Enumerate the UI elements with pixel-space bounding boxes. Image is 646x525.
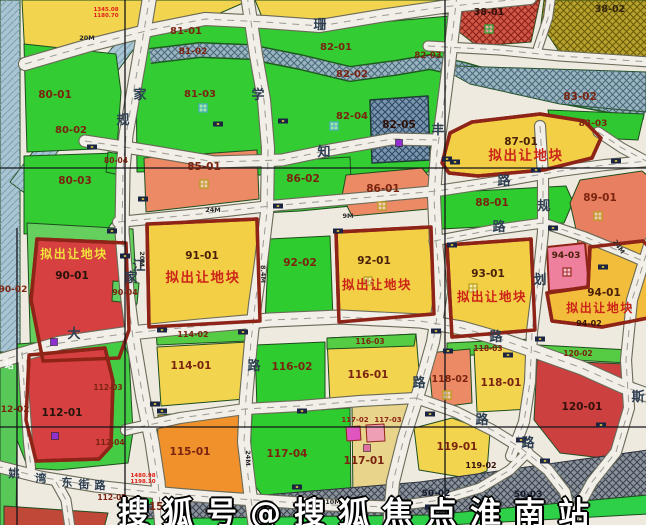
parcel-label: 90-04 bbox=[112, 288, 138, 297]
road-name-char: 路 bbox=[247, 358, 261, 374]
parcel-label: 94-01 bbox=[587, 287, 621, 299]
corner-marker-dot bbox=[535, 169, 537, 171]
parcel-label: 81-01 bbox=[170, 26, 202, 37]
road-name-char: 路 bbox=[497, 173, 511, 189]
parcel-label: 94-02 bbox=[576, 319, 602, 328]
parcel-label: 38-02 bbox=[595, 4, 625, 15]
parcel-label: 91-01 bbox=[185, 250, 219, 262]
parcel-label: 86-01 bbox=[366, 183, 400, 195]
map-symbol-icon bbox=[364, 445, 371, 452]
road-width-label: 24M bbox=[244, 450, 252, 466]
parcel-label: 112-04 bbox=[95, 438, 124, 447]
corner-marker-dot bbox=[111, 230, 113, 232]
parcel-label: 82-05 bbox=[382, 119, 416, 131]
parcel-label: 80-01 bbox=[38, 89, 72, 101]
parcel-label: 80-04 bbox=[104, 156, 128, 165]
road-name-char: 路 bbox=[489, 329, 503, 345]
road-name-char: 路 bbox=[475, 412, 489, 428]
parcel-label: 118-03 bbox=[473, 344, 502, 353]
road-name-char: 姚 bbox=[8, 466, 20, 480]
parcel-label: 82-01 bbox=[320, 42, 352, 53]
parcel-label: 112-03 bbox=[93, 383, 122, 392]
parcel-label: 81-02 bbox=[179, 47, 208, 57]
road-name-char: 大 bbox=[67, 326, 80, 342]
road-width-label: 20M bbox=[138, 251, 146, 267]
parcel-label: 117-02 bbox=[341, 416, 368, 424]
road-name-char: 学 bbox=[251, 87, 264, 103]
parcel-label: 118-02 bbox=[432, 374, 469, 385]
corner-marker-dot bbox=[301, 410, 303, 412]
parcel-92-01 bbox=[336, 227, 434, 322]
corner-marker-dot bbox=[91, 146, 93, 148]
map-symbol-icon bbox=[199, 104, 207, 112]
road-name-char: 划 bbox=[533, 272, 546, 288]
road-name-char: 家 bbox=[133, 87, 147, 103]
corner-marker-dot bbox=[154, 403, 156, 405]
parcel-label: 120-01 bbox=[562, 401, 603, 413]
parcel-label: 80-02 bbox=[55, 125, 87, 136]
parcel-label: 83-03 bbox=[579, 119, 608, 129]
road-name-char: 东 bbox=[62, 475, 73, 489]
parcel-114-01 bbox=[157, 342, 248, 406]
road-name-char: 站 bbox=[4, 359, 13, 371]
parcel-label: 87-01 bbox=[504, 136, 538, 148]
parcel-label: 88-01 bbox=[475, 197, 509, 209]
road-name-char: 路 bbox=[492, 219, 506, 235]
planning-map: 80-0180-0380-0483-0283-0338-0138-0282-05… bbox=[0, 0, 646, 525]
corner-marker-dot bbox=[242, 331, 244, 333]
road-name-char: 路 bbox=[95, 478, 107, 492]
parcel-label: 82-03 bbox=[414, 51, 441, 61]
offer-label: 拟出让地块 bbox=[40, 246, 108, 261]
road-name-char: 湾 bbox=[36, 471, 47, 485]
watermark: 搜狐号@搜狐焦点淮南站 bbox=[118, 488, 602, 525]
map-symbol-icon bbox=[200, 180, 208, 188]
map-symbol-icon bbox=[330, 122, 338, 130]
parcel-label: 92-01 bbox=[357, 255, 391, 267]
offer-label: 拟出让地块 bbox=[342, 277, 412, 292]
map-symbol-icon bbox=[51, 339, 58, 346]
parcel-label: 117-04 bbox=[267, 448, 308, 460]
corner-marker-dot bbox=[282, 120, 284, 122]
parcel-label: 114-01 bbox=[171, 360, 212, 372]
corner-marker-dot bbox=[124, 255, 126, 257]
corner-marker-dot bbox=[447, 350, 449, 352]
offer-label: 拟出让地块 bbox=[566, 300, 634, 315]
road-name-char: 家 bbox=[124, 270, 138, 286]
corner-marker-dot bbox=[161, 329, 163, 331]
road-name-char: 规 bbox=[537, 199, 550, 214]
parcel-80-03 bbox=[24, 153, 119, 234]
parcel-label: 117-01 bbox=[344, 455, 385, 467]
corner-marker-dot bbox=[507, 354, 509, 356]
corner-marker-dot bbox=[435, 330, 437, 332]
map-symbol-icon bbox=[378, 202, 386, 210]
road-width-label: 20M bbox=[79, 34, 95, 42]
parcel-label: 118-01 bbox=[481, 377, 522, 389]
parcel-label: 90-01 bbox=[55, 270, 89, 282]
corner-marker-dot bbox=[552, 227, 554, 229]
corner-marker-dot bbox=[337, 230, 339, 232]
parcel-label: 89-01 bbox=[583, 192, 617, 204]
coord-annotation: 1180.70 bbox=[93, 13, 118, 19]
road-name-char: 规 bbox=[116, 113, 129, 128]
offer-label: 拟出让地块 bbox=[166, 269, 241, 286]
corner-marker-dot bbox=[161, 410, 163, 412]
parcel-label: 119-02 bbox=[465, 461, 496, 470]
parcel-label: 82-04 bbox=[336, 111, 368, 122]
parcel-label: 80-03 bbox=[58, 175, 92, 187]
parcel-117-02 bbox=[346, 426, 361, 441]
corner-marker-dot bbox=[600, 424, 602, 426]
road-name-char: 珊 bbox=[313, 18, 326, 33]
parcel-label: 90-02 bbox=[0, 285, 27, 295]
road-name-char: 丰 bbox=[431, 122, 444, 138]
road-name-char: 知 bbox=[317, 144, 330, 160]
map-symbol-icon bbox=[443, 391, 451, 399]
road-name-char: 街 bbox=[78, 477, 90, 491]
road-width-label: 24M bbox=[205, 206, 221, 214]
offer-label: 拟出让地块 bbox=[457, 289, 527, 304]
parcel-label: 116-01 bbox=[348, 369, 389, 381]
corner-marker-dot bbox=[142, 198, 144, 200]
corner-marker-dot bbox=[277, 205, 279, 207]
parcel-label: 116-03 bbox=[355, 337, 384, 346]
corner-marker-dot bbox=[446, 158, 448, 160]
parcel-label: 117-03 bbox=[374, 416, 401, 424]
parcel-label: 93-01 bbox=[471, 268, 505, 280]
map-symbol-icon bbox=[52, 433, 59, 440]
coord-annotation: 1198.10 bbox=[130, 479, 155, 485]
road-name-char: 路 bbox=[521, 435, 535, 451]
road-width-label: 9M bbox=[343, 212, 354, 220]
parcel-left-green bbox=[0, 352, 18, 525]
map-symbol-icon bbox=[563, 268, 571, 276]
offer-label: 拟出让地块 bbox=[489, 147, 564, 164]
road-name-char: 斯 bbox=[631, 389, 644, 405]
corner-marker-dot bbox=[217, 123, 219, 125]
parcel-label: 92-02 bbox=[283, 257, 317, 269]
parcel-92-02 bbox=[265, 236, 333, 323]
map-symbol-icon bbox=[485, 25, 493, 33]
map-symbol-icon bbox=[396, 140, 403, 147]
parcel-label: 82-02 bbox=[336, 69, 368, 80]
corner-marker-dot bbox=[429, 413, 431, 415]
parcel-label: 94-03 bbox=[552, 251, 581, 261]
corner-marker-dot bbox=[615, 160, 617, 162]
parcel-label: 83-02 bbox=[563, 91, 597, 103]
parcel-label: 112-02 bbox=[0, 405, 30, 415]
parcel-label: 81-03 bbox=[184, 89, 216, 100]
parcel-label: 38-01 bbox=[474, 7, 504, 18]
corner-marker-dot bbox=[544, 460, 546, 462]
parcel-label: 120-02 bbox=[563, 349, 592, 358]
parcel-label: 85-01 bbox=[187, 161, 221, 173]
parcel-label: 119-01 bbox=[437, 441, 478, 453]
parcel-label: 116-02 bbox=[272, 361, 313, 373]
parcel-label: 112-01 bbox=[42, 407, 83, 419]
corner-marker-dot bbox=[539, 338, 541, 340]
parcel-label: 114-02 bbox=[177, 330, 208, 339]
corner-marker-dot bbox=[454, 161, 456, 163]
corner-marker-dot bbox=[602, 266, 604, 268]
road-name-char: 路 bbox=[412, 375, 426, 391]
corner-marker-dot bbox=[451, 244, 453, 246]
map-symbol-icon bbox=[594, 212, 602, 220]
road-width-label: 8.4M bbox=[259, 265, 267, 283]
parcel-label: 86-02 bbox=[286, 173, 320, 185]
planning-map-svg: 80-0180-0380-0483-0283-0338-0138-0282-05… bbox=[0, 0, 646, 525]
parcel-label: 115-01 bbox=[170, 446, 211, 458]
